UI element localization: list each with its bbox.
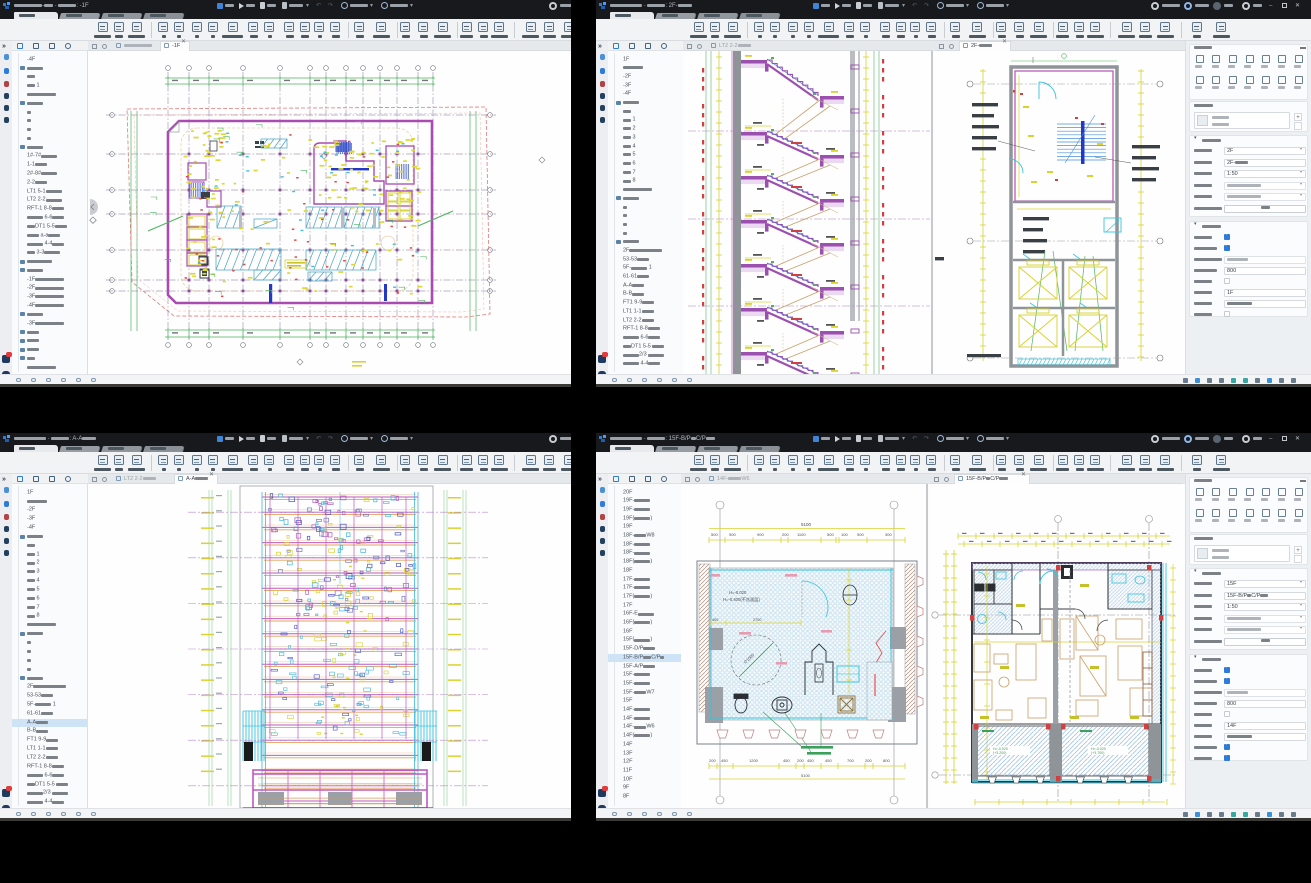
svg-text:450: 450 — [825, 758, 832, 763]
svg-text:900: 900 — [757, 532, 764, 537]
svg-text:450: 450 — [807, 758, 814, 763]
svg-text:H=-0.020: H=-0.020 — [729, 590, 747, 595]
svg-text:450: 450 — [721, 758, 728, 763]
svg-text:200: 200 — [865, 758, 872, 763]
svg-text:(+3.700): (+3.700) — [1091, 751, 1105, 755]
svg-text:H=-0.400(不含面层): H=-0.400(不含面层) — [723, 596, 760, 603]
svg-text:200: 200 — [782, 532, 789, 537]
svg-text:500: 500 — [711, 532, 718, 537]
svg-text:5100: 5100 — [801, 522, 812, 527]
svg-text:200: 200 — [709, 758, 716, 763]
svg-text:900: 900 — [729, 532, 736, 537]
svg-text:800: 800 — [883, 758, 890, 763]
svg-text:450: 450 — [783, 758, 790, 763]
svg-text:(+3.200): (+3.200) — [993, 751, 1007, 755]
svg-text:500: 500 — [827, 532, 834, 537]
svg-text:5100: 5100 — [801, 773, 811, 778]
svg-text:1100: 1100 — [797, 532, 806, 537]
svg-text:400: 400 — [712, 618, 718, 622]
svg-text:300: 300 — [885, 532, 892, 537]
svg-text:900: 900 — [857, 532, 864, 537]
svg-text:2700: 2700 — [753, 618, 761, 622]
svg-text:200: 200 — [797, 758, 804, 763]
svg-text:1200: 1200 — [749, 758, 759, 763]
svg-text:700: 700 — [847, 758, 854, 763]
svg-text:100: 100 — [841, 532, 848, 537]
